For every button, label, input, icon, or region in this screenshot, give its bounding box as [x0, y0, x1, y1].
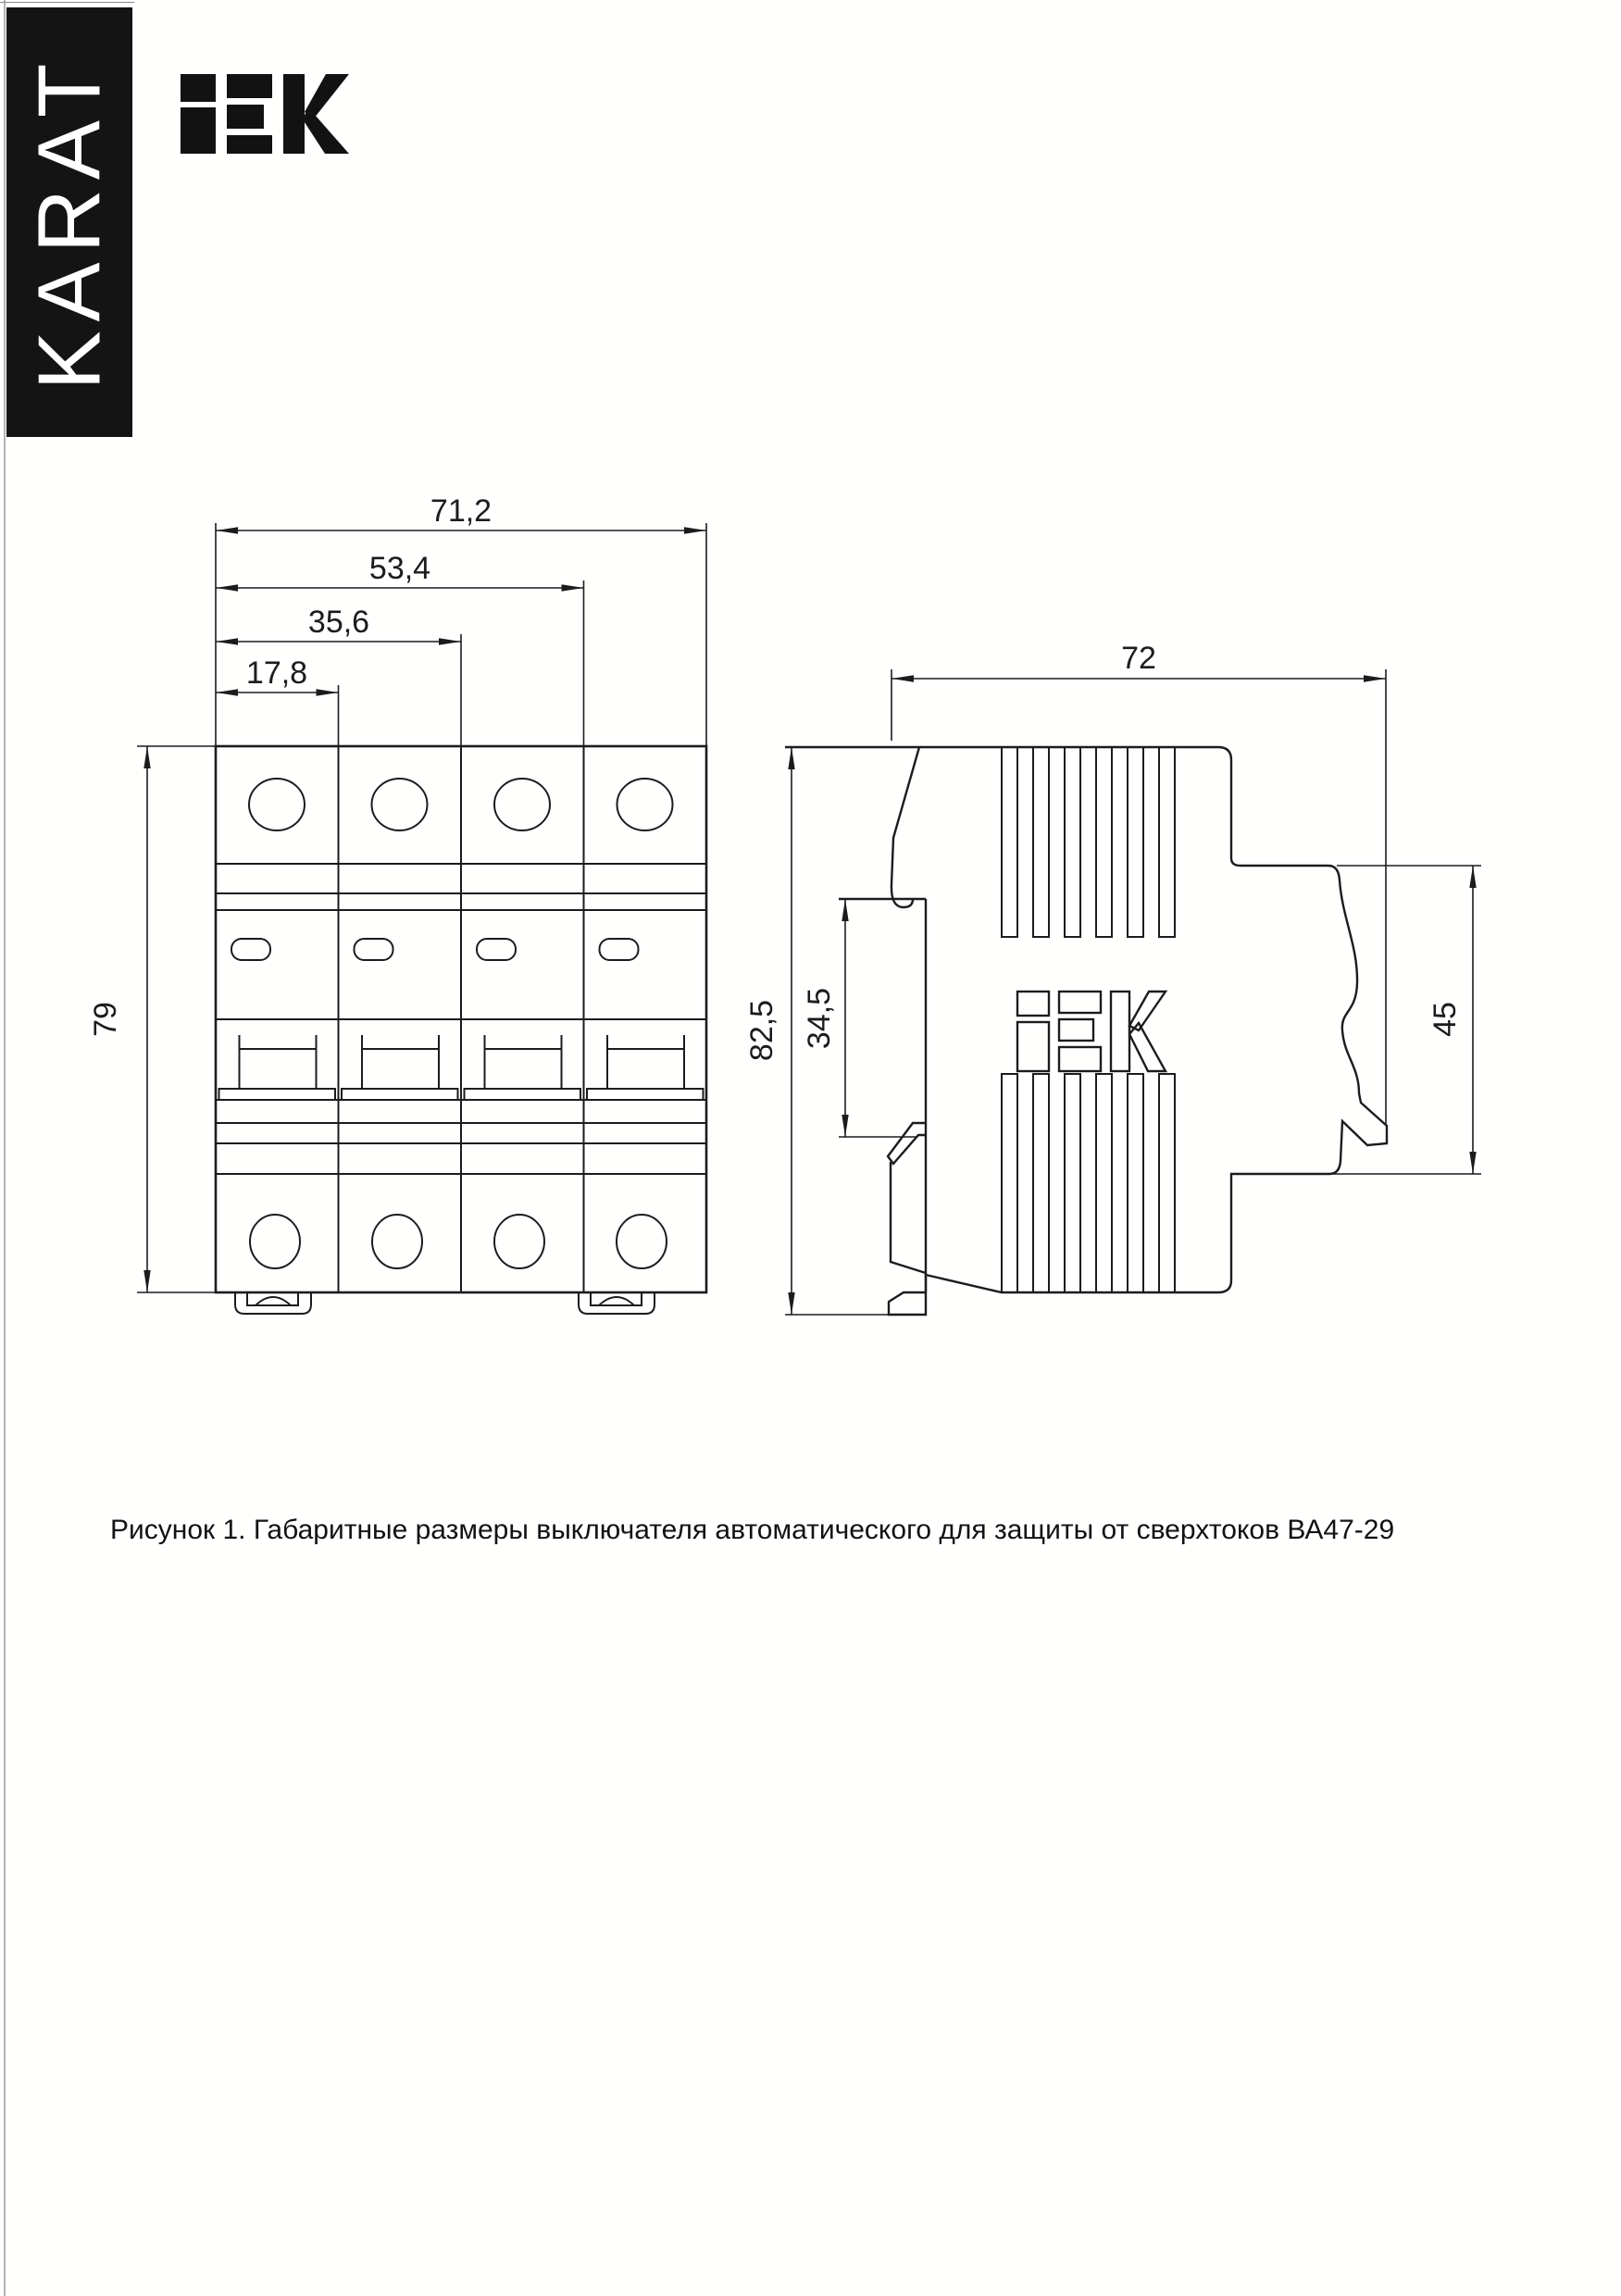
dim-label-depth: 72	[1121, 641, 1156, 676]
side-din-profile	[839, 747, 926, 1315]
side-vent-slats-bottom	[1002, 1074, 1175, 1292]
front-bottom-terminal-screws	[250, 1215, 667, 1268]
side-vent-slats-top	[1002, 747, 1175, 937]
front-extension-lines	[137, 523, 706, 1292]
side-iek-logo	[1017, 992, 1166, 1071]
dim-label-total-width: 71,2	[430, 493, 492, 529]
front-din-clips	[235, 1292, 655, 1314]
figure-caption: Рисунок 1. Габаритные размеры выключател…	[110, 1515, 1554, 1546]
dimensional-drawing: 71,2 53,4 35,6 17,8 79	[0, 0, 1621, 1407]
dim-label-height: 79	[88, 1002, 123, 1037]
dim-label-two-pole: 35,6	[308, 605, 369, 640]
dim-label-total-height: 82,5	[744, 1000, 779, 1061]
document-page: KARAT	[0, 0, 1621, 2296]
dim-label-three-pole: 53,4	[369, 551, 430, 586]
dim-label-front-face: 45	[1428, 1002, 1463, 1037]
front-label-windows	[231, 939, 639, 960]
front-view	[216, 746, 706, 1314]
side-view	[785, 747, 1387, 1315]
dim-label-rail-recess: 34,5	[802, 988, 837, 1049]
dim-label-one-pole: 17,8	[246, 655, 307, 691]
